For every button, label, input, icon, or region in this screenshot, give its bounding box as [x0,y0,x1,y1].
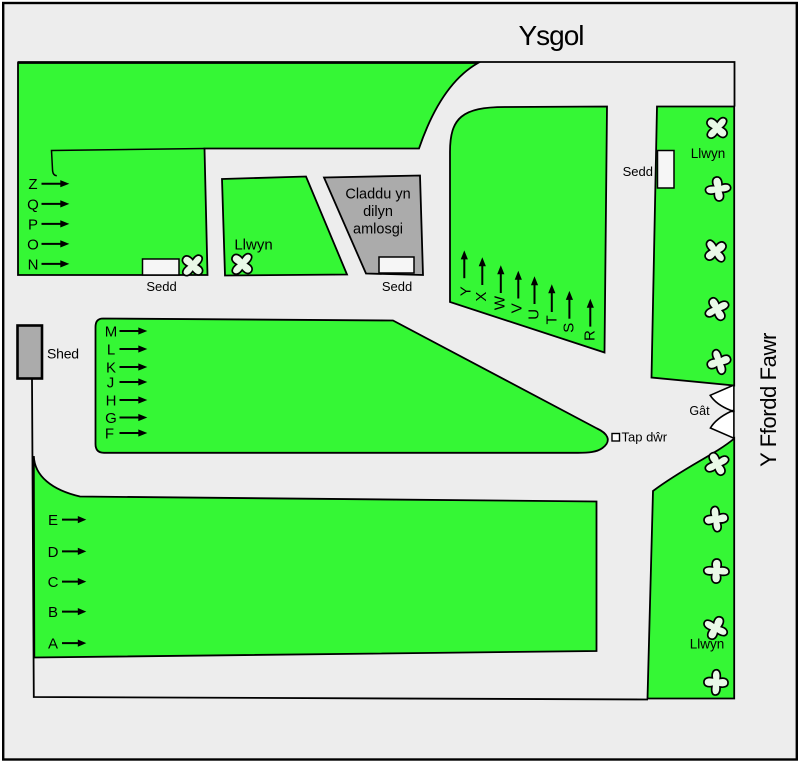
svg-text:Z: Z [28,176,37,193]
svg-text:S: S [561,323,578,333]
svg-text:Shed: Shed [47,346,79,362]
svg-text:E: E [48,512,58,529]
svg-text:U: U [526,309,543,320]
svg-text:Llwyn: Llwyn [690,637,725,652]
svg-text:T: T [544,315,561,324]
svg-text:O: O [27,236,39,253]
svg-text:Gât: Gât [689,404,710,418]
svg-text:Ysgol: Ysgol [518,20,583,51]
svg-text:L: L [107,341,115,358]
svg-text:G: G [105,410,117,427]
svg-text:Claddu yn: Claddu yn [345,187,410,203]
svg-text:Tap dŵr: Tap dŵr [622,430,668,445]
svg-text:W: W [491,295,508,310]
svg-text:Y Ffordd Fawr: Y Ffordd Fawr [756,333,781,467]
svg-text:H: H [106,392,117,409]
svg-text:F: F [105,425,114,442]
svg-text:R: R [582,330,599,341]
svg-text:P: P [28,216,38,233]
svg-text:J: J [107,374,115,391]
svg-text:B: B [48,604,58,621]
svg-text:X: X [473,292,490,302]
svg-text:M: M [105,323,118,340]
svg-text:V: V [508,303,525,313]
svg-text:amlosgi: amlosgi [353,222,403,238]
svg-text:N: N [28,256,39,273]
svg-text:Llwyn: Llwyn [691,146,726,161]
svg-text:Sedd: Sedd [382,279,412,294]
svg-text:A: A [48,636,58,653]
svg-text:D: D [48,544,59,561]
svg-text:dilyn: dilyn [363,204,393,220]
svg-text:Q: Q [27,196,39,213]
svg-text:Sedd: Sedd [146,279,176,294]
svg-text:Llwyn: Llwyn [234,237,272,254]
svg-text:C: C [48,574,59,591]
svg-text:Sedd: Sedd [623,164,653,179]
